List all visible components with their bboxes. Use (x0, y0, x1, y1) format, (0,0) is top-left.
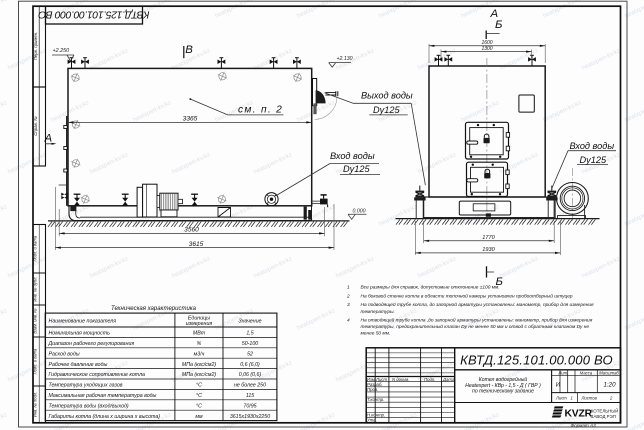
svg-text:Взам. инв. №: Взам. инв. № (33, 308, 38, 334)
svg-text:ЗАВОД РЭП: ЗАВОД РЭП (591, 414, 616, 419)
svg-text:А: А (44, 132, 53, 144)
svg-text:Dy125: Dy125 (373, 105, 400, 115)
svg-text:Масса: Масса (580, 370, 593, 375)
svg-text:Б: Б (495, 19, 503, 31)
svg-text:На боковой стенке котла в обла: На боковой стенке котла в области топочн… (361, 292, 573, 299)
svg-text:1: 1 (571, 396, 573, 401)
svg-text:температуры, предохранительный: температуры, предохранительный клапан Dу… (361, 323, 590, 330)
svg-text:Подп. и дата: Подп. и дата (33, 235, 38, 261)
svg-text:Вход воды: Вход воды (570, 141, 615, 151)
svg-text:Гидравлическое сопротивление к: Гидравлическое сопротивление котла (49, 372, 146, 378)
svg-text:1930: 1930 (482, 247, 495, 253)
svg-text:Листов: Листов (581, 396, 598, 401)
svg-text:Выход воды: Выход воды (361, 90, 413, 100)
svg-text:1300: 1300 (481, 46, 492, 52)
svg-text:KVZR: KVZR (565, 409, 593, 420)
svg-text:Температура воды (вход/выход): Температура воды (вход/выход) (49, 403, 129, 409)
svg-text:Расход воды: Расход воды (49, 351, 80, 357)
svg-text:На подводящей трубе котла, до: На подводящей трубе котла, до запорной а… (361, 301, 594, 308)
svg-text:Перв. примен.: Перв. примен. (33, 32, 38, 61)
svg-text:Т.контр.: Т.контр. (367, 397, 384, 402)
svg-text:Масштаб: Масштаб (599, 370, 619, 375)
svg-text:+2.130: +2.130 (337, 56, 353, 62)
svg-text:КВТД.125.101.00.000 ВО: КВТД.125.101.00.000 ВО (460, 352, 613, 367)
svg-text:2: 2 (346, 293, 350, 299)
svg-text:°С: °С (196, 393, 202, 399)
svg-text:N докум.: N докум. (392, 377, 409, 382)
svg-text:Dy125: Dy125 (580, 155, 607, 165)
svg-text:Dy125: Dy125 (343, 164, 370, 174)
svg-text:Все размеры для справок, допус: Все размеры для справок, допустимые откл… (361, 284, 500, 290)
svg-text:Максимальная рабочая температу: Максимальная рабочая температура воды (49, 393, 157, 399)
svg-text:Утв.: Утв. (367, 418, 377, 423)
svg-text:Номинальная мощность: Номинальная мощность (49, 331, 111, 337)
svg-text:3365: 3365 (183, 116, 198, 123)
svg-text:Инв. № дубл.: Инв. № дубл. (33, 276, 38, 301)
svg-text:На отводящей трубе котла ,до з: На отводящей трубе котла ,до запорной ар… (361, 316, 593, 323)
svg-text:°С: °С (196, 383, 202, 389)
svg-text:измерения: измерения (186, 321, 213, 327)
svg-text:Пров.: Пров. (367, 387, 378, 392)
svg-text:52: 52 (247, 351, 253, 357)
svg-text:мм: мм (195, 414, 203, 420)
svg-text:1: 1 (347, 284, 350, 290)
svg-text:Лист: Лист (555, 396, 567, 401)
svg-text:не более 250: не более 250 (234, 383, 266, 389)
svg-text:0.000: 0.000 (353, 208, 366, 214)
svg-text:температуры.: температуры. (361, 310, 395, 315)
svg-text:1,5: 1,5 (246, 331, 253, 337)
svg-text:%: % (197, 341, 202, 347)
svg-text:Подп.: Подп. (424, 377, 435, 382)
svg-text:70/95: 70/95 (243, 403, 256, 409)
svg-text:1:20: 1:20 (603, 381, 616, 388)
svg-text:50-100: 50-100 (242, 341, 258, 347)
svg-text:В: В (185, 44, 193, 56)
svg-text:3: 3 (347, 302, 350, 308)
svg-text:менее 50 мм.: менее 50 мм. (361, 331, 391, 337)
svg-text:МПа (кгс/см2): МПа (кгс/см2) (182, 372, 217, 378)
svg-text:°С: °С (196, 403, 202, 409)
svg-text:1600: 1600 (481, 40, 492, 46)
svg-text:Дата: Дата (442, 377, 455, 382)
svg-text:+2.250: +2.250 (53, 48, 70, 54)
svg-text:3560: 3560 (184, 227, 199, 234)
svg-text:0,6 (6,0): 0,6 (6,0) (240, 362, 260, 368)
svg-text:Вход воды: Вход воды (330, 151, 375, 161)
svg-text:И: И (556, 381, 561, 388)
svg-text:115: 115 (246, 393, 254, 399)
svg-text:КВТД.125.101.00.000 ВО: КВТД.125.101.00.000 ВО (38, 8, 149, 19)
svg-text:3615: 3615 (189, 241, 204, 248)
svg-text:Техническая характеристика: Техническая характеристика (111, 306, 197, 312)
svg-text:МВт: МВт (193, 331, 206, 337)
svg-text:Температура уходящих газов: Температура уходящих газов (49, 383, 123, 389)
svg-text:Наименование показателя: Наименование показателя (49, 318, 117, 324)
svg-text:см. п. 2: см. п. 2 (238, 105, 283, 116)
svg-text:Справ. №: Справ. № (33, 116, 38, 136)
svg-text:Значение: Значение (238, 318, 261, 324)
svg-text:Формат А3: Формат А3 (571, 423, 597, 428)
svg-text:1770: 1770 (482, 235, 495, 241)
svg-text:Лит.: Лит. (557, 370, 568, 375)
svg-text:Габариты котла (длина х ширина: Габариты котла (длина х ширина х высота) (49, 414, 161, 420)
svg-text:м3/ч: м3/ч (194, 351, 205, 357)
svg-text:по техническому задание: по техническому задание (472, 389, 534, 395)
svg-text:0,06 (0,6): 0,06 (0,6) (239, 372, 262, 378)
svg-text:Инв. № подл.: Инв. № подл. (33, 392, 38, 417)
svg-text:Диапазон рабочего регулировани: Диапазон рабочего регулирования (48, 341, 135, 347)
svg-text:Рабочее давление воды: Рабочее давление воды (49, 362, 108, 368)
svg-text:3615х1930х2250: 3615х1930х2250 (230, 414, 270, 420)
svg-text:4: 4 (347, 317, 350, 323)
svg-text:Подп. и дата: Подп. и дата (33, 348, 38, 374)
svg-text:МПа (кгс/см2): МПа (кгс/см2) (182, 362, 217, 368)
